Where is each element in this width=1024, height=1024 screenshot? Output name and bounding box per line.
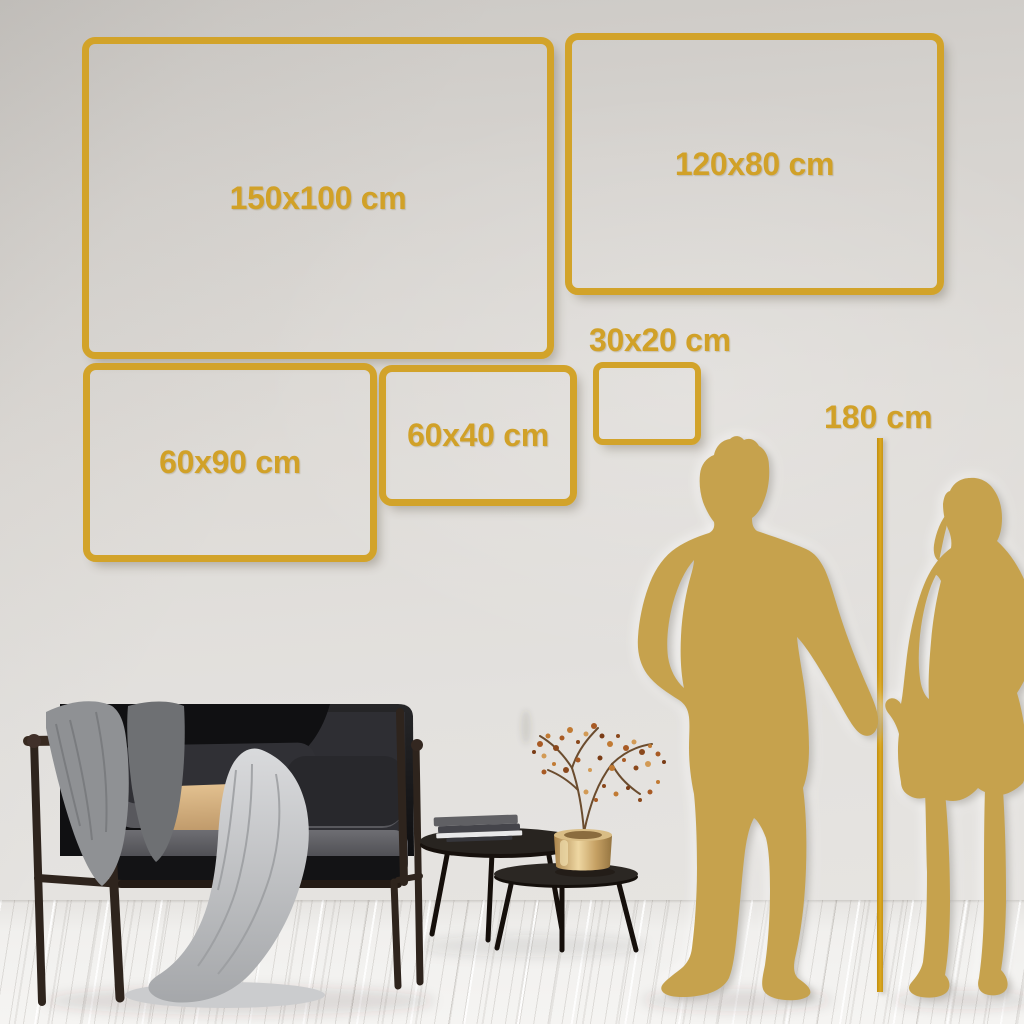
couple-silhouettes bbox=[638, 436, 1024, 1000]
grey-blanket bbox=[46, 701, 129, 886]
wall-smudge bbox=[521, 710, 531, 744]
books-stack bbox=[434, 814, 523, 842]
man-silhouette bbox=[638, 436, 878, 1000]
blossoms bbox=[532, 723, 666, 802]
woman-silhouette bbox=[885, 478, 1024, 801]
room-scene-illustration bbox=[0, 0, 1024, 1024]
size-comparison-infographic: 150x100 cm 120x80 cm 60x90 cm 60x40 cm 3… bbox=[0, 0, 1024, 1024]
sofa bbox=[27, 701, 423, 1008]
woman-left-leg bbox=[909, 791, 950, 998]
woman-right-leg bbox=[978, 789, 1008, 996]
